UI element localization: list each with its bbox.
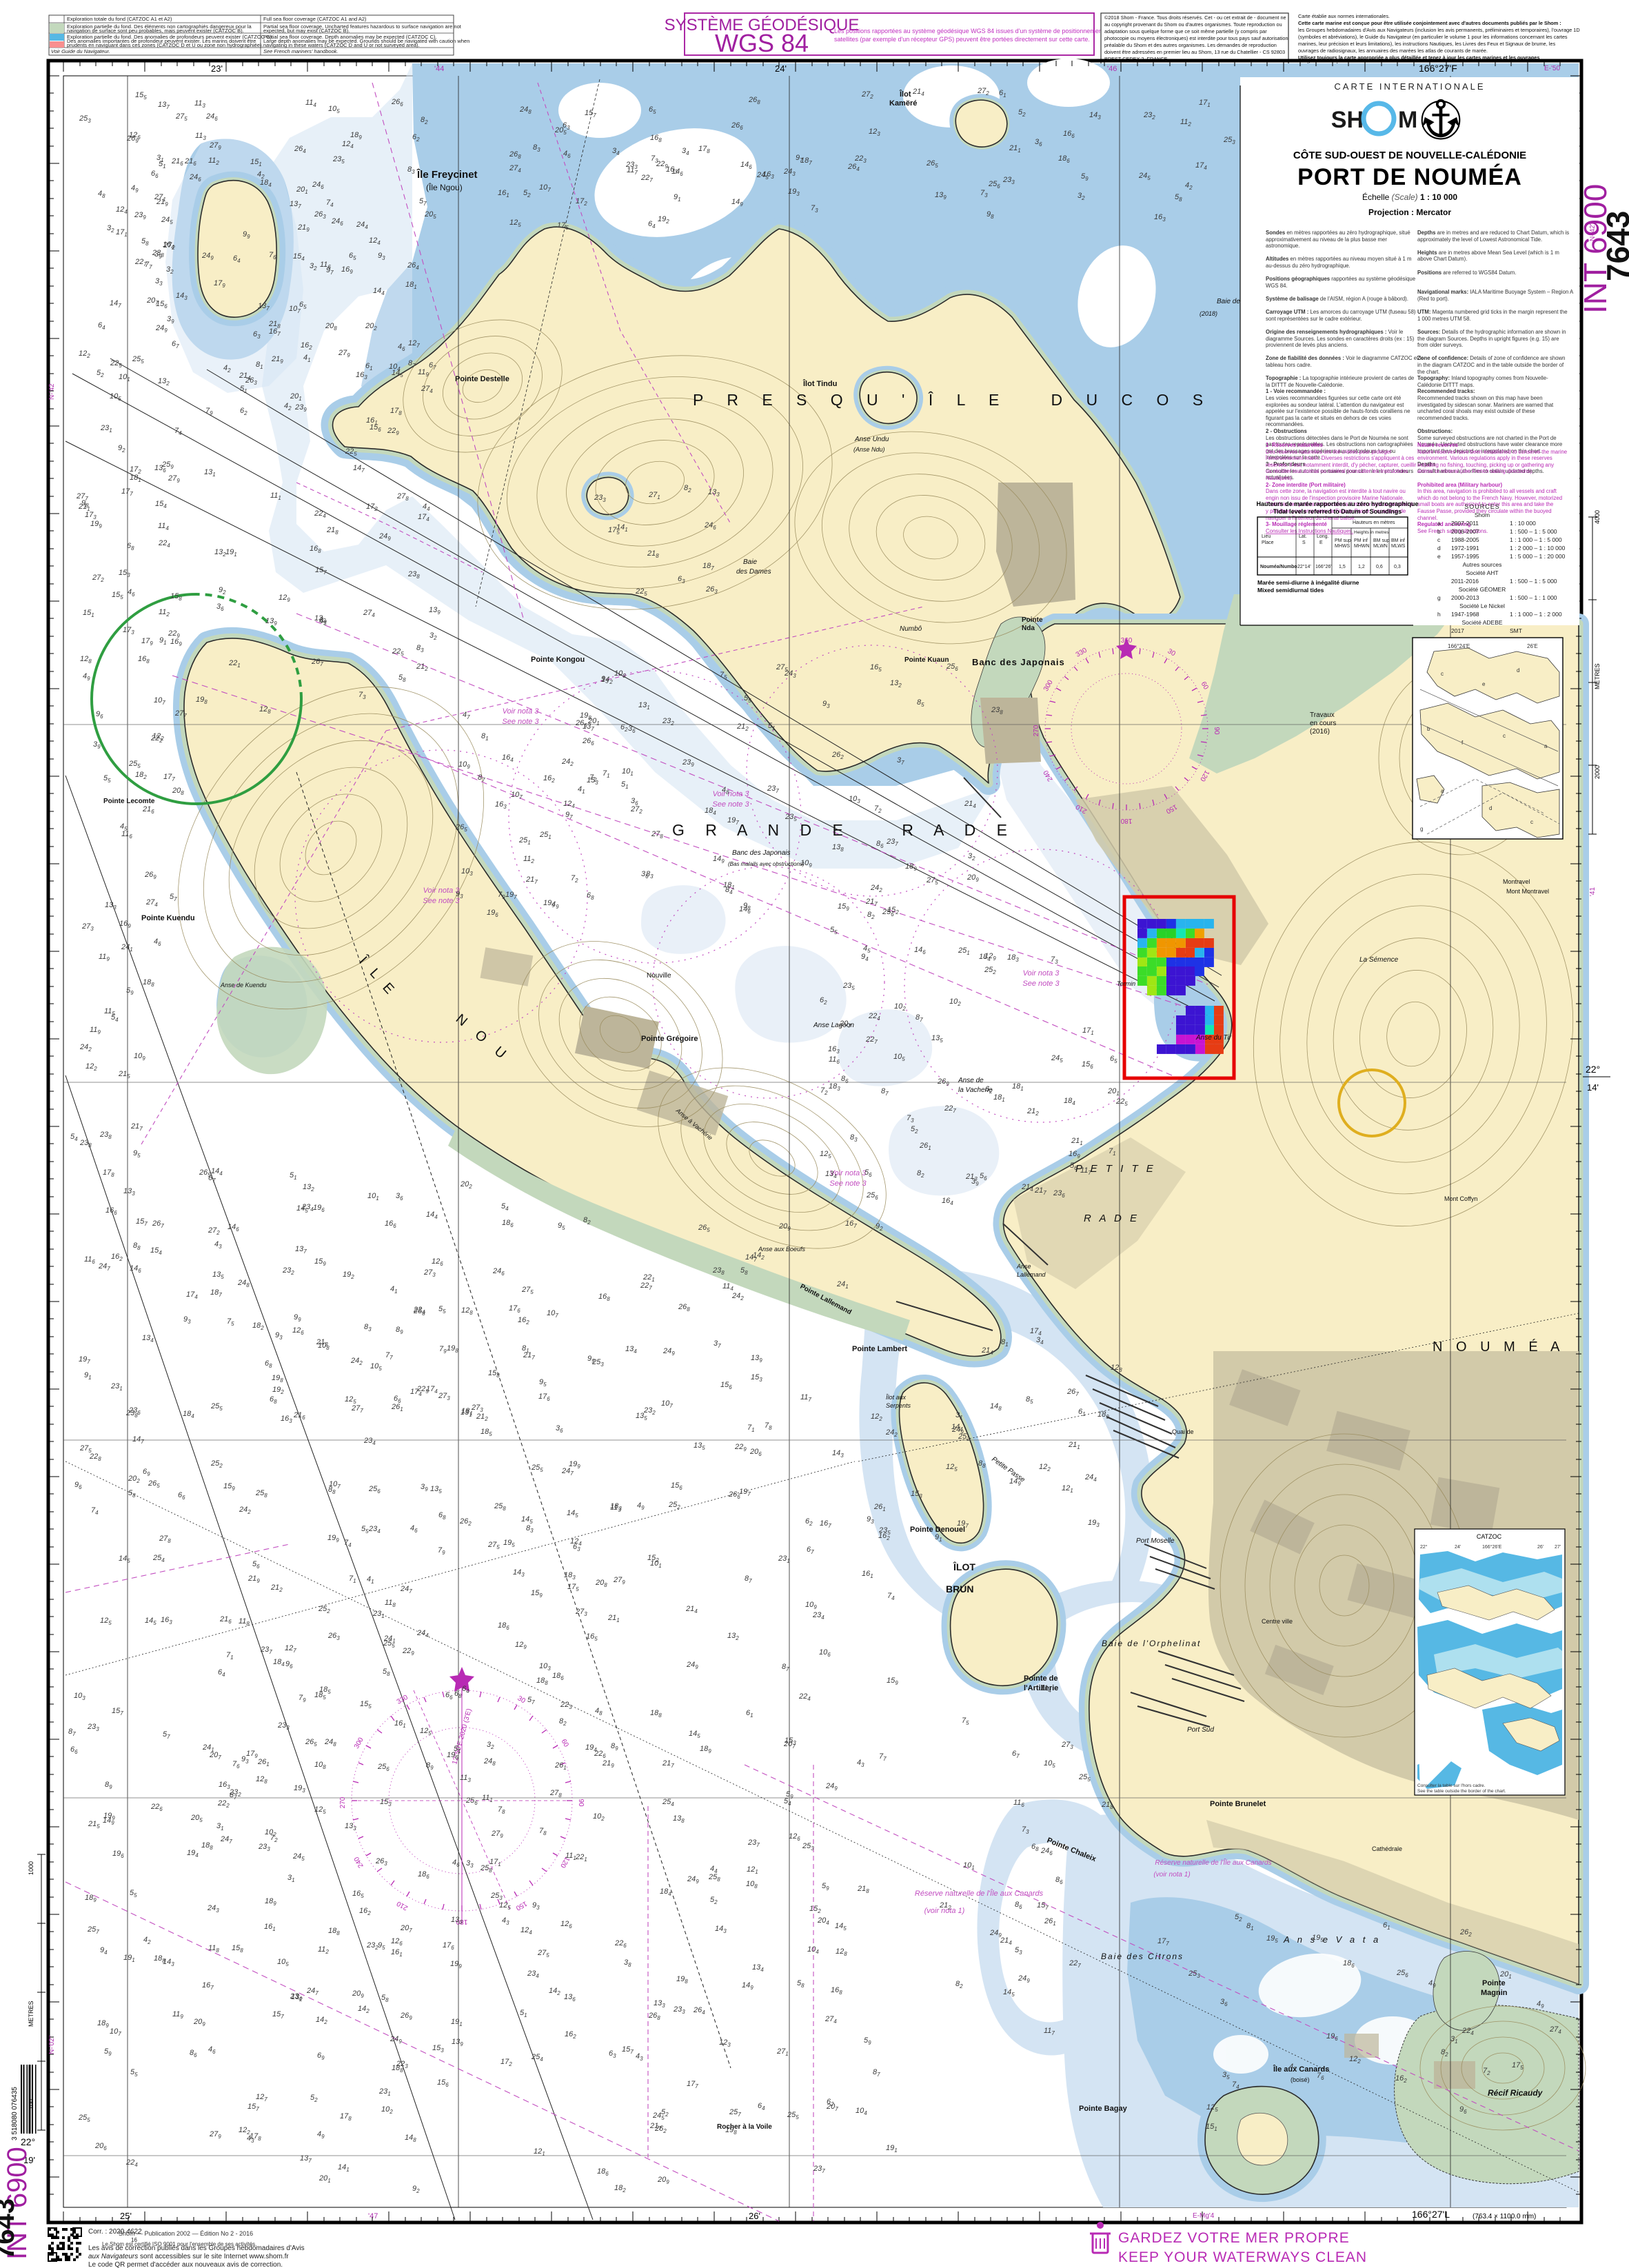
- svg-text:1988-2005: 1988-2005: [1451, 536, 1479, 543]
- svg-text:N-'02": N-'02": [48, 2035, 56, 2054]
- svg-text:naviguer à l'intérieur du chen: naviguer à l'intérieur du chenal balisé.: [1266, 515, 1356, 521]
- svg-text:from older surveys.: from older surveys.: [1417, 342, 1463, 348]
- svg-text:2011-2016: 2011-2016: [1451, 578, 1479, 585]
- svg-text:Pointe: Pointe: [1022, 616, 1043, 624]
- svg-text:figurant pas la carte et: figurant pas la carte et situés en dehor…: [1266, 415, 1391, 421]
- svg-text:Rocher à la Voile: Rocher à la Voile: [717, 2123, 772, 2131]
- svg-text:e: e: [1482, 681, 1486, 687]
- svg-text:Exploration totale du fond (CA: Exploration totale du fond (CATZOC A1 et…: [67, 16, 172, 22]
- svg-text:Hauteurs en mètres: Hauteurs en mètres: [1353, 520, 1395, 525]
- svg-text:CARTE INTERNATIONALE: CARTE INTERNATIONALE: [1334, 81, 1485, 92]
- svg-text:2006-2007: 2006-2007: [1451, 528, 1479, 535]
- svg-text:1957-1995: 1957-1995: [1451, 553, 1479, 560]
- svg-text:See note 3: See note 3: [712, 800, 749, 809]
- svg-text:c: c: [1530, 819, 1533, 825]
- svg-text:Altitudes en mètres rapportées: Altitudes en mètres rapportées au niveau…: [1266, 256, 1412, 262]
- svg-text:166°24'E: 166°24'E: [1448, 643, 1470, 649]
- svg-text:Termin: Termin: [1117, 980, 1135, 987]
- svg-text:PM sup: PM sup: [1335, 538, 1351, 543]
- svg-text:SH: SH: [1331, 107, 1364, 133]
- svg-text:recommandées.: recommandées.: [1266, 421, 1304, 427]
- svg-text:Pointe Kuendu: Pointe Kuendu: [141, 914, 195, 922]
- svg-text:WGS 84.: WGS 84.: [1266, 283, 1288, 289]
- svg-text:E-Mg'4: E-Mg'4: [1193, 2212, 1215, 2220]
- svg-text:WGS 84: WGS 84: [715, 29, 809, 57]
- svg-text:Magnin: Magnin: [1481, 1989, 1508, 1997]
- svg-text:ÎLOT: ÎLOT: [953, 1561, 975, 1572]
- svg-text:Positions are referred to WGS8: Positions are referred to WGS84 Datum.: [1417, 270, 1516, 276]
- svg-text:expected, but may exist (CATZO: expected, but may exist (CATZOC B).: [263, 28, 350, 34]
- svg-text:Nouville: Nouville: [647, 972, 671, 980]
- svg-text:Anse du Tir: Anse du Tir: [1195, 1034, 1232, 1042]
- svg-text:Les avis de correction publiés: Les avis de correction publiés dans les …: [88, 2245, 305, 2252]
- svg-text:Banc des Japonais: Banc des Japonais: [972, 657, 1065, 667]
- svg-text:Heights are in metres above: Heights are in metres above Mean Sea Lev…: [1417, 250, 1559, 256]
- svg-text:Consulter les Instructions Nau: Consulter les Instructions Nautiques.: [1266, 528, 1353, 534]
- svg-text:Baie des Citrons: Baie des Citrons: [1101, 1952, 1184, 1961]
- svg-text:26'E: 26'E: [1527, 643, 1538, 649]
- svg-text:h: h: [1437, 611, 1441, 618]
- svg-text:Îlot: Îlot: [899, 90, 911, 99]
- svg-text:BM sup: BM sup: [1373, 538, 1390, 543]
- svg-text:photocopie ou moyens électroni: photocopie ou moyens électroniques) est …: [1104, 35, 1288, 41]
- svg-text:satellites (par exemple d'un r: satellites (par exemple d'un récepteur G…: [834, 36, 1090, 43]
- svg-text:Réserve naturelle de l'Île aux: Réserve naturelle de l'Île aux Canards: [915, 1889, 1044, 1898]
- svg-text:16: 16: [131, 2237, 137, 2243]
- svg-text:Pointe Lecomte: Pointe Lecomte: [103, 798, 155, 805]
- svg-text:See note 3: See note 3: [423, 897, 460, 905]
- svg-text:explorées au sondeur latéra: explorées au sondeur latéral. L'attentio…: [1266, 402, 1404, 408]
- svg-text:Pointe Brunelet: Pointe Brunelet: [1210, 1800, 1266, 1808]
- svg-text:La Sémence: La Sémence: [1359, 956, 1399, 964]
- svg-text:Origine des renseignements: Origine des renseignements hydrographiqu…: [1266, 329, 1403, 335]
- svg-text:1 : 1 000 – 1 : 5 000: 1 : 1 000 – 1 : 5 000: [1510, 536, 1562, 543]
- svg-text:préalable du Shom et des: préalable du Shom et des autres organism…: [1104, 42, 1277, 48]
- svg-text:See French mariners' handbook.: See French mariners' handbook.: [263, 48, 338, 54]
- svg-text:Navigational marks: IALA Marit: Navigational marks: IALA Maritime Buoyag…: [1417, 289, 1574, 295]
- svg-text:A n s e V a t a: A n s e V a t a: [1283, 1934, 1381, 1945]
- svg-text:marines, leur précision et leu: marines, leur précision et leurs limitat…: [1298, 41, 1555, 47]
- svg-text:Le code QR permet d'accéder au: Le code QR permet d'accéder aux nouveaux…: [88, 2261, 283, 2268]
- svg-text:réserves. Il est, notamment in: réserves. Il est, notamment interdit, d'…: [1266, 462, 1417, 468]
- svg-text:Anse aux Boeufs: Anse aux Boeufs: [758, 1246, 806, 1253]
- svg-text:Île aux Canards: Île aux Canards: [1273, 2065, 1329, 2074]
- svg-text:SOURCES: SOURCES: [1464, 503, 1500, 510]
- svg-text:Pointe Kongou: Pointe Kongou: [531, 656, 585, 664]
- svg-text:Kamëré: Kamëré: [889, 99, 917, 108]
- svg-text:Pointe Lambert: Pointe Lambert: [852, 1345, 907, 1353]
- svg-text:Nature reserves: Nature reserves: [1417, 442, 1459, 448]
- svg-text:approximativement au niveau: approximativement au niveau de la plus b…: [1266, 236, 1387, 243]
- svg-text:Centre ville: Centre ville: [1262, 1618, 1293, 1625]
- svg-text:Calédonie DITTT maps.: Calédonie DITTT maps.: [1417, 382, 1475, 388]
- svg-text:CÔTE SUD-OUEST DE NOUVELLE-CAL: CÔTE SUD-OUEST DE NOUVELLE-CALÉDONIE: [1293, 149, 1526, 161]
- svg-text:Some surveyed obstructions: Some surveyed obstructions are not chart…: [1417, 435, 1557, 441]
- svg-text:Nature reserves have been est: Nature reserves have been established to…: [1417, 449, 1567, 455]
- svg-text:d: d: [1437, 545, 1441, 551]
- svg-text:MHWS: MHWS: [1335, 544, 1350, 549]
- svg-text:22°: 22°: [21, 2136, 35, 2147]
- svg-text:3 518080 076435: 3 518080 076435: [11, 2087, 19, 2140]
- svg-text:Sondes en mètres rapportées au: Sondes en mètres rapportées au zéro hydr…: [1266, 230, 1410, 236]
- svg-text:24': 24': [775, 63, 787, 74]
- svg-text:PORT DE NOUMÉA: PORT DE NOUMÉA: [1297, 164, 1522, 190]
- svg-text:Carte établie aux normes inter: Carte établie aux normes internationales…: [1298, 13, 1390, 19]
- svg-text:Autres sources: Autres sources: [1463, 561, 1502, 568]
- svg-text:Cathédrale: Cathédrale: [1372, 1845, 1402, 1852]
- svg-text:P E T I T E: P E T I T E: [1075, 1163, 1156, 1175]
- svg-text:Prohibited area (Military harb: Prohibited area (Military harbour): [1417, 482, 1502, 488]
- svg-text:MLWN: MLWN: [1373, 544, 1388, 549]
- svg-text:1- Réserves naturelles: 1- Réserves naturelles: [1266, 442, 1323, 448]
- svg-text:tableau hors cadre.: tableau hors cadre.: [1266, 362, 1312, 368]
- svg-text:23': 23': [211, 63, 223, 74]
- svg-text:2 - Obstructions: 2 - Obstructions: [1266, 428, 1307, 434]
- svg-text:N-'42: N-'42: [48, 383, 56, 400]
- svg-text:b: b: [1437, 528, 1441, 535]
- svg-text:(2016): (2016): [1310, 728, 1330, 736]
- svg-text:c: c: [1441, 671, 1444, 677]
- svg-text:a: a: [1441, 788, 1444, 794]
- svg-text:Pointe Bagay: Pointe Bagay: [1079, 2105, 1128, 2113]
- svg-text:MHWN: MHWN: [1354, 544, 1370, 549]
- svg-text:166°26'E: 166°26'E: [1482, 1544, 1502, 1550]
- svg-text:'46: '46: [1107, 65, 1117, 73]
- svg-text:which do not belong to the Fre: which do not belong to the French Navy. …: [1417, 495, 1562, 501]
- svg-text:above Chart Datum).: above Chart Datum).: [1417, 256, 1467, 262]
- svg-text:BM inf: BM inf: [1391, 538, 1405, 543]
- svg-text:R A D E: R A D E: [1084, 1213, 1140, 1224]
- svg-text:Lieu: Lieu: [1262, 534, 1271, 539]
- svg-text:27': 27': [1555, 1545, 1561, 1550]
- svg-text:1 : 2 000 – 1 : 10 000: 1 : 2 000 – 1 : 10 000: [1510, 545, 1566, 551]
- svg-text:Des réserves naturelles: Des réserves naturelles ont été créées p…: [1266, 449, 1392, 455]
- svg-text:d: d: [1517, 667, 1519, 674]
- svg-text:166°26': 166°26': [1315, 564, 1332, 569]
- svg-text:See note 3: See note 3: [1022, 980, 1060, 988]
- svg-text:Serpents: Serpents: [886, 1402, 911, 1409]
- svg-text:0,6: 0,6: [1376, 565, 1383, 569]
- svg-text:BRUN: BRUN: [946, 1583, 973, 1594]
- svg-text:Voir nota 3: Voir nota 3: [423, 887, 461, 895]
- svg-text:Les voies recommandées figu: Les voies recommandées figurées sur cett…: [1266, 395, 1401, 401]
- svg-text:Nouméa/Numbo: Nouméa/Numbo: [1260, 565, 1297, 569]
- svg-text:Hauteurs de marée rapportées a: Hauteurs de marée rapportées au zéro hyd…: [1256, 500, 1418, 507]
- svg-text:Banc des Japonais: Banc des Japonais: [732, 849, 791, 857]
- svg-text:1 : 1 000 – 1 : 2 000: 1 : 1 000 – 1 : 2 000: [1510, 611, 1562, 618]
- svg-text:Montravel: Montravel: [1503, 878, 1530, 885]
- svg-text:Pointe Kuaun: Pointe Kuaun: [904, 656, 949, 664]
- svg-text:N O U M É A: N O U M É A: [1433, 1339, 1564, 1355]
- svg-text:In this area, navigation i: In this area, navigation is prohibited t…: [1417, 488, 1557, 494]
- svg-text:Numbô: Numbô: [900, 625, 922, 633]
- svg-text:E: E: [1319, 540, 1323, 545]
- svg-text:Nda: Nda: [1022, 625, 1035, 632]
- svg-text:Long.: Long.: [1317, 534, 1329, 539]
- svg-text:proviennent de levés plus anci: proviennent de levés plus anciens.: [1266, 342, 1348, 348]
- svg-text:1972-1991: 1972-1991: [1451, 545, 1479, 551]
- svg-text:Pointe Denouel: Pointe Denouel: [910, 1526, 965, 1534]
- svg-text:180: 180: [1120, 817, 1132, 824]
- svg-text:Corr. : 2020 4622: Corr. : 2020 4622: [88, 2228, 142, 2236]
- svg-text:Tidal levels referred to Datum: Tidal levels referred to Datum of Soundi…: [1273, 508, 1402, 515]
- svg-text:MLWS: MLWS: [1391, 544, 1406, 549]
- svg-text:c: c: [1503, 733, 1506, 739]
- svg-text:2- Zone interdite (Port milita: 2- Zone interdite (Port militaire): [1266, 482, 1346, 488]
- svg-text:Travaux: Travaux: [1310, 711, 1335, 719]
- svg-text:a: a: [1437, 520, 1441, 527]
- svg-text:Pointe Destelle: Pointe Destelle: [455, 375, 509, 383]
- svg-text:Sources: Details of the hyd: Sources: Details of the hydrographic inf…: [1417, 329, 1566, 335]
- svg-text:'41: '41: [1589, 887, 1597, 896]
- svg-text:See note 3: See note 3: [829, 1179, 867, 1188]
- svg-text:(Anse Ndu): (Anse Ndu): [853, 446, 885, 453]
- svg-text:au copyright provenant du Shom: au copyright provenant du Shom ou d'autr…: [1104, 21, 1282, 28]
- svg-text:Voir nota 3: Voir nota 3: [1023, 969, 1060, 978]
- svg-text:Îlot Tindu: Îlot Tindu: [802, 379, 837, 388]
- svg-text:Pointe: Pointe: [1482, 1979, 1506, 1987]
- svg-text:26': 26': [1537, 1545, 1544, 1550]
- svg-text:ou récolter tout animal ou: ou récolter tout animal ou minéral (cons…: [1266, 468, 1408, 474]
- svg-text:Recommended tracks:: Recommended tracks:: [1417, 388, 1475, 394]
- svg-text:S: S: [1302, 540, 1306, 545]
- svg-text:Baie: Baie: [743, 558, 757, 566]
- svg-text:Zone de fiabilité des données: Zone de fiabilité des données : Voir le …: [1266, 355, 1424, 361]
- svg-text:Réserve naturelle de l'Île aux: Réserve naturelle de l'Île aux Canards: [1155, 1858, 1271, 1867]
- svg-text:ouvrages de radiosignaux, les: ouvrages de radiosignaux, les annuaires …: [1298, 48, 1488, 54]
- svg-text:Les obstructions détectées: Les obstructions détectées dans le Port …: [1266, 435, 1409, 441]
- svg-text:Mont Coffyn: Mont Coffyn: [1444, 1195, 1477, 1202]
- svg-text:(2018): (2018): [1200, 310, 1217, 317]
- svg-text:Voir Guide du Navigateur.: Voir Guide du Navigateur.: [51, 48, 110, 54]
- svg-text:4000: 4000: [1594, 510, 1601, 524]
- svg-text:Zone of confidence: Details of: Zone of confidence: Details of zone of c…: [1417, 355, 1566, 361]
- svg-text:1 : 10 000: 1 : 10 000: [1510, 520, 1536, 527]
- svg-text:14': 14': [1587, 1082, 1599, 1093]
- svg-text:METRES: METRES: [28, 2001, 34, 2027]
- svg-text:Lat.: Lat.: [1299, 534, 1307, 539]
- svg-text:22°: 22°: [1586, 1064, 1600, 1075]
- svg-text:Pointe de: Pointe de: [1024, 1674, 1058, 1683]
- svg-text:b: b: [1427, 726, 1430, 732]
- svg-text:Recommended tracks shown: Recommended tracks shown on this map hav…: [1417, 395, 1543, 401]
- svg-text:METRES: METRES: [1594, 663, 1601, 689]
- svg-text:in the diagram CATZOC and in: in the diagram CATZOC and in the table o…: [1417, 362, 1564, 368]
- svg-text:Obstructions:: Obstructions:: [1417, 428, 1453, 434]
- svg-text:astronomique.: astronomique.: [1266, 243, 1299, 249]
- svg-text:7643: 7643: [1600, 211, 1629, 281]
- svg-text:3- Mouillage réglementé: 3- Mouillage réglementé: [1266, 521, 1327, 527]
- svg-text:Échelle (Scale) 1 : 10 000: Échelle (Scale) 1 : 10 000: [1362, 192, 1457, 202]
- svg-text:UTM: Magenta numbered grid: UTM: Magenta numbered grid ticks in the …: [1417, 309, 1568, 315]
- svg-text:©2018 Shom - France. Tous droi: ©2018 Shom - France. Tous droits réservé…: [1104, 14, 1286, 21]
- svg-text:au-dessus du zéro hydrographiq: au-dessus du zéro hydrographique.: [1266, 263, 1350, 269]
- svg-text:les Groupes hebdomadaires d'A: les Groupes hebdomadaires d'Avis aux Nav…: [1298, 27, 1580, 33]
- svg-text:the chart.: the chart.: [1417, 369, 1440, 375]
- svg-text:PM inf: PM inf: [1354, 538, 1368, 543]
- svg-text:navigation de surface sont peu: navigation de surface sont peu probables…: [67, 28, 244, 34]
- svg-text:Full sea floor coverage (CATZO: Full sea floor coverage (CATZOC A1 and A…: [263, 16, 367, 22]
- svg-text:GARDEZ VOTRE MER PROPRE: GARDEZ VOTRE MER PROPRE: [1118, 2230, 1350, 2246]
- svg-text:Dans cette zone, la naviga: Dans cette zone, la navigation est inter…: [1266, 488, 1406, 494]
- svg-text:Mixed semidiurnal tides: Mixed semidiurnal tides: [1257, 587, 1324, 594]
- svg-text:Depths are in metres and are: Depths are in metres and are reduced to …: [1417, 230, 1569, 236]
- svg-text:Marée semi-diurne à inégalité: Marée semi-diurne à inégalité diurne: [1257, 579, 1359, 586]
- svg-text:See the table outside the bord: See the table outside the border of the …: [1417, 1789, 1506, 1794]
- svg-text:g: g: [1437, 594, 1441, 601]
- svg-text:2000: 2000: [1594, 765, 1601, 779]
- svg-text:See note 3: See note 3: [502, 718, 539, 726]
- svg-text:'44: '44: [434, 65, 444, 73]
- svg-text:e: e: [1437, 553, 1441, 560]
- svg-text:Topographie : La topographie i: Topographie : La topographie intérieure …: [1266, 375, 1414, 381]
- svg-text:100: 100: [28, 2099, 34, 2109]
- svg-text:l'Artillerie: l'Artillerie: [1024, 1684, 1058, 1692]
- svg-text:0,3: 0,3: [1394, 565, 1401, 569]
- svg-text:Anse Lagoon: Anse Lagoon: [813, 1022, 854, 1029]
- svg-text:en cours: en cours: [1310, 720, 1336, 727]
- svg-text:prudents en naviguant dans ces: prudents en naviguant dans ces zones (CA…: [67, 42, 263, 48]
- svg-text:Topography: Inland topograp: Topography: Inland topography comes from…: [1417, 375, 1548, 381]
- svg-text:CATZOC: CATZOC: [1477, 1533, 1502, 1540]
- svg-text:aux Navigateurs sont accessibl: aux Navigateurs sont accessibles sur le …: [88, 2253, 289, 2260]
- svg-text:26': 26': [749, 2211, 760, 2221]
- svg-text:approximately the level of Low: approximately the level of Lowest Astron…: [1417, 236, 1542, 243]
- svg-text:(Île Ngou): (Île Ngou): [426, 182, 463, 192]
- svg-text:Consulter la table sur l'hors: Consulter la table sur l'hors cadre.: [1417, 1783, 1486, 1788]
- svg-text:Quai de: Quai de: [1172, 1428, 1194, 1435]
- svg-text:2017: 2017: [1451, 627, 1464, 634]
- svg-text:adaptation sous quelque for: adaptation sous quelque forme que ce soi…: [1104, 28, 1267, 34]
- svg-text:Voir nota 3: Voir nota 3: [713, 790, 750, 798]
- svg-text:Anse de Kuendu: Anse de Kuendu: [220, 982, 267, 989]
- svg-text:1 : 500 – 1 : 5 000: 1 : 500 – 1 : 5 000: [1510, 528, 1557, 535]
- svg-text:P R E S Q U ' Î L E D U C O: P R E S Q U ' Î L E D U C O S: [693, 391, 1213, 409]
- svg-text:1 000 metres UTM 58.: 1 000 metres UTM 58.: [1417, 316, 1471, 322]
- svg-text:270: 270: [1033, 725, 1040, 736]
- svg-text:(Bas malails avec obstructions: (Bas malails avec obstructions): [728, 861, 805, 867]
- svg-text:Anse de: Anse de: [958, 1077, 984, 1084]
- svg-text:Voir nota 3: Voir nota 3: [503, 707, 540, 716]
- svg-text:22°: 22°: [1420, 1544, 1428, 1550]
- svg-text:Île Freycinet: Île Freycinet: [416, 168, 478, 181]
- svg-text:(symboles et abréviations), le: (symboles et abréviations), le Guide du …: [1298, 34, 1568, 40]
- svg-text:Société AHT: Société AHT: [1466, 569, 1498, 576]
- svg-text:(Red to port).: (Red to port).: [1417, 296, 1449, 302]
- svg-text:90: 90: [577, 1799, 585, 1807]
- svg-text:navigating in these waters (CA: navigating in these waters (CATZOC D and…: [263, 42, 420, 48]
- svg-text:(voir nota 1): (voir nota 1): [1153, 1871, 1190, 1879]
- svg-text:Société GÉOMER: Société GÉOMER: [1459, 586, 1506, 593]
- svg-text:including no fishing, touch: including no fishing, touching, picking …: [1417, 462, 1554, 468]
- svg-text:Pointe Grégoire: Pointe Grégoire: [641, 1035, 698, 1043]
- svg-text:la DITTT de Nouvelle-Calédonie: la DITTT de Nouvelle-Calédonie.: [1266, 382, 1344, 388]
- svg-text:1,5: 1,5: [1339, 565, 1346, 569]
- svg-text:1000: 1000: [28, 1861, 34, 1875]
- svg-text:270: 270: [339, 1796, 347, 1808]
- svg-text:Société ADEBE: Société ADEBE: [1461, 619, 1502, 626]
- svg-text:recommended tracks.: recommended tracks.: [1417, 415, 1469, 421]
- svg-text:(boisé): (boisé): [1291, 2076, 1310, 2083]
- svg-text:Récif Ricaudy: Récif Ricaudy: [1488, 2088, 1544, 2098]
- svg-text:Place: Place: [1262, 540, 1274, 545]
- svg-text:la Vacherie: la Vacherie: [958, 1086, 993, 1094]
- svg-text:diagramme Sources. Les sondes: diagramme Sources. Les sondes en caractè…: [1266, 336, 1415, 342]
- svg-text:the diagram Sources. Depths: the diagram Sources. Depths in upright f…: [1417, 336, 1559, 342]
- svg-text:Nautiques).: Nautiques).: [1266, 475, 1293, 481]
- svg-text:25': 25': [120, 2211, 132, 2221]
- svg-text:'47: '47: [368, 2212, 378, 2220]
- svg-text:Anse: Anse: [1016, 1263, 1031, 1270]
- svg-text:Port Moselle: Port Moselle: [1136, 1537, 1175, 1545]
- svg-text:M: M: [1398, 107, 1417, 133]
- svg-text:166°27'L: 166°27'L: [1412, 2209, 1450, 2220]
- svg-text:90: 90: [1213, 727, 1220, 735]
- svg-text:Port Sud: Port Sud: [1187, 1726, 1214, 1734]
- svg-text:2000-2013: 2000-2013: [1451, 594, 1479, 601]
- svg-text:Système de balisage de l'AISM,: Système de balisage de l'AISM, région A …: [1266, 296, 1408, 302]
- svg-text:sont représentées sur le cadre: sont représentées sur le cadre extérieur…: [1266, 316, 1362, 322]
- svg-text:investigated by sidescan so: investigated by sidescan sonar. Mariners…: [1417, 402, 1554, 408]
- svg-text:1 - Voie recommandée :: 1 - Voie recommandée :: [1266, 388, 1326, 394]
- svg-text:uncharted coral shoals m: uncharted coral shoals may exist outside…: [1417, 408, 1535, 414]
- svg-text:des Dames: des Dames: [736, 568, 771, 576]
- svg-text:appelée sur l'existence pos: appelée sur l'existence possible de haut…: [1266, 408, 1410, 414]
- svg-text:G R A N D E R A D E: G R A N D E R A D E: [672, 821, 1015, 839]
- svg-text:l'environnement marin. Diverse: l'environnement marin. Diverses restrict…: [1266, 455, 1414, 461]
- svg-text:a: a: [1544, 743, 1548, 749]
- svg-text:22°14': 22°14': [1297, 564, 1311, 569]
- svg-text:animal or mineral (see French: animal or mineral (see French sailing di…: [1417, 468, 1533, 474]
- svg-text:Lallemand: Lallemand: [1017, 1271, 1046, 1278]
- svg-text:1 : 500 – 1 : 5 000: 1 : 500 – 1 : 5 000: [1510, 578, 1557, 585]
- svg-text:Carroyage UTM : Les amorces du: Carroyage UTM : Les amorces du carroyage…: [1266, 309, 1416, 315]
- svg-text:1 : 500 – 1 : 1 000: 1 : 500 – 1 : 1 000: [1510, 594, 1557, 601]
- svg-text:KEEP YOUR WATERWAYS CLEAN: KEEP YOUR WATERWAYS CLEAN: [1118, 2249, 1367, 2265]
- svg-text:Anse Undu: Anse Undu: [854, 436, 889, 443]
- svg-text:Les positions rapportées au sy: Les positions rapportées au système géod…: [834, 28, 1115, 34]
- svg-text:SMT: SMT: [1510, 627, 1522, 634]
- svg-text:(763.4 × 1100.0 mm): (763.4 × 1100.0 mm): [1473, 2213, 1536, 2220]
- svg-text:166°27'F: 166°27'F: [1419, 63, 1457, 74]
- svg-text:g: g: [1420, 826, 1423, 832]
- svg-text:Mont Montravel: Mont Montravel: [1506, 888, 1549, 895]
- svg-text:Heights in metres: Heights in metres: [1354, 530, 1389, 535]
- svg-text:N-'42": N-'42": [1589, 222, 1597, 241]
- svg-text:d: d: [1489, 805, 1492, 811]
- svg-text:1947-1968: 1947-1968: [1451, 611, 1479, 618]
- svg-text:2007-2011: 2007-2011: [1451, 520, 1479, 527]
- svg-text:doivent être adressées en prem: doivent être adressées en premier lieu a…: [1104, 49, 1285, 55]
- svg-text:Positions géographiques rappor: Positions géographiques rapportées au sy…: [1266, 276, 1415, 282]
- svg-text:Shom: Shom: [1475, 512, 1490, 518]
- svg-text:24': 24': [1455, 1545, 1461, 1550]
- svg-text:Projection : Mercator: Projection : Mercator: [1368, 207, 1451, 217]
- svg-text:channel.: channel.: [1417, 515, 1437, 521]
- svg-text:1,2: 1,2: [1358, 565, 1365, 569]
- svg-text:7643: 7643: [0, 2198, 20, 2260]
- svg-text:environment. Various regula: environment. Various regulations apply i…: [1417, 455, 1552, 461]
- svg-text:Cette carte marine est conçue: Cette carte marine est conçue pour être …: [1298, 20, 1561, 26]
- svg-text:E-'50: E-'50: [1544, 65, 1560, 72]
- svg-text:Baie de l'Orphelinat: Baie de l'Orphelinat: [1102, 1639, 1201, 1648]
- svg-text:1 : 5 000 – 1 : 20 000: 1 : 5 000 – 1 : 20 000: [1510, 553, 1566, 560]
- svg-text:Société Le Nickel: Société Le Nickel: [1459, 603, 1505, 609]
- svg-text:Îlot aux: Îlot aux: [886, 1394, 907, 1401]
